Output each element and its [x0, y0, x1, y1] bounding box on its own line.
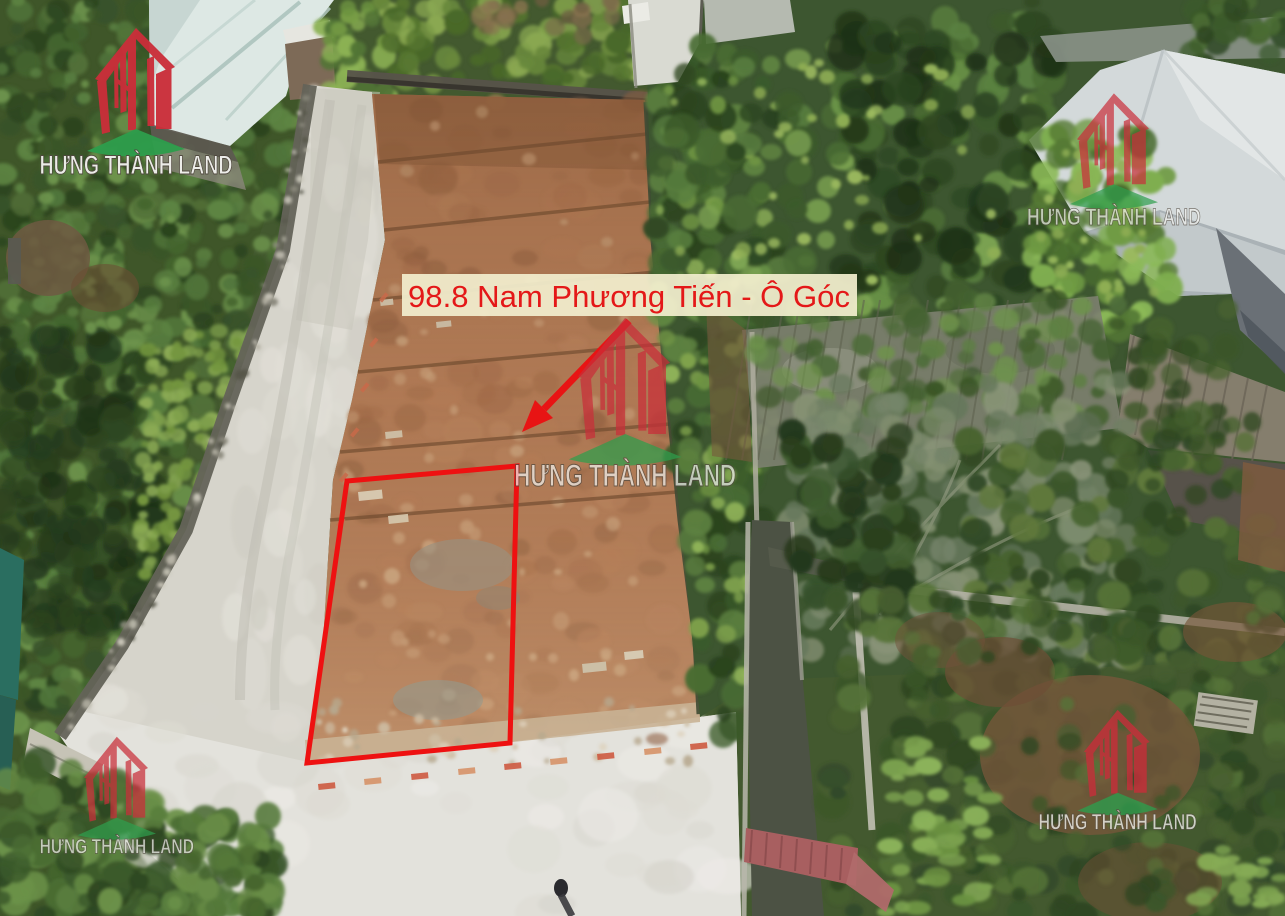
svg-text:98.8 Nam Phương Tiến - Ô Góc: 98.8 Nam Phương Tiến - Ô Góc	[408, 279, 850, 314]
